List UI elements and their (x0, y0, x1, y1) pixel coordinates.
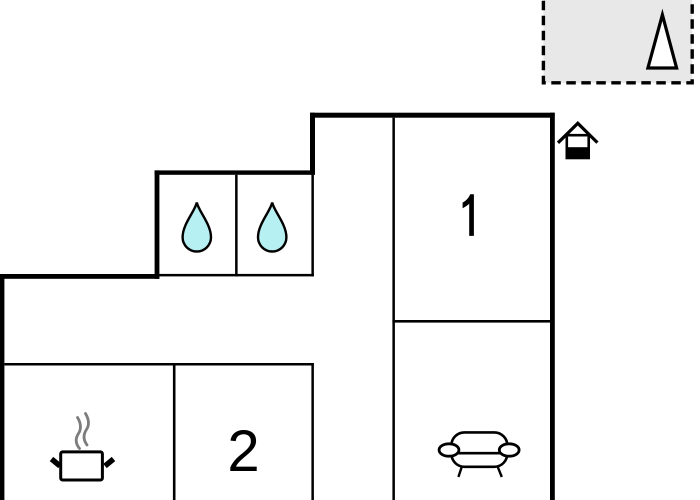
svg-text:2: 2 (227, 419, 259, 484)
